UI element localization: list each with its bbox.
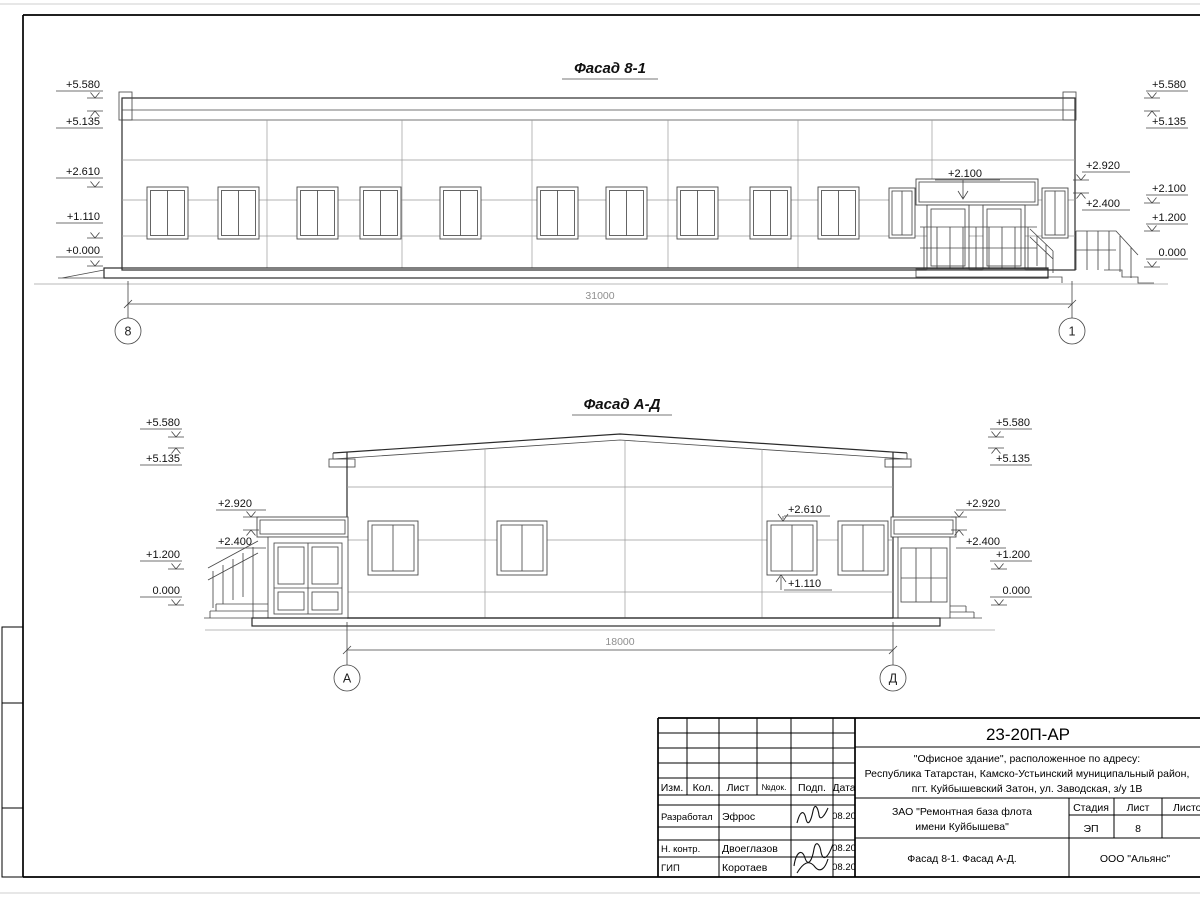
axis-bubble-label: А [343,672,352,686]
facade1-entrance [916,179,1062,283]
elevation-mark: +2.400 [1086,198,1120,210]
facade2-right-porch [891,517,982,618]
tb-stage-label: Стадия [1073,802,1109,814]
tb-name: Эфрос [722,811,755,823]
tb-doc-code: 23-20П-АР [986,725,1070,744]
elevation-mark: +1.200 [1152,212,1186,224]
elevation-mark: +5.580 [1152,79,1186,91]
axis-bubble-label: 1 [1069,325,1076,339]
tb-col-izm: Изм. [661,782,684,794]
tb-sheet-value: 8 [1135,823,1141,835]
elevation-mark: +2.920 [1086,160,1120,172]
elevation-mark: +5.135 [996,453,1030,465]
facade-a-d: Фасад А-Д [140,396,1032,691]
facade1-building [34,92,1168,284]
facade-8-1: Фасад 8-1 [34,60,1188,344]
drawing-sheet: Фасад 8-1 [0,0,1200,900]
facade2-dimension: 18000 А Д [334,622,906,691]
elevation-mark: +1.110 [67,211,100,223]
tb-stage-value: ЭП [1083,823,1098,835]
tb-role: Н. контр. [661,844,700,855]
elevation-mark: +5.135 [146,453,180,465]
facade2-marks-right-outer: +5.580 +5.135 +1.200 0.000 [988,417,1032,605]
facade1-right-stair [1076,231,1154,283]
tb-name: Двоеглазов [722,843,778,855]
tb-client-line2: имени Куйбышева" [915,821,1009,833]
elevation-mark: +2.920 [966,498,1000,510]
tb-date: 08.20 [832,811,856,822]
elevation-mark: +1.200 [996,549,1030,561]
tb-date: 08.20 [832,862,856,873]
tb-organization: ООО "Альянс" [1100,853,1170,865]
facade1-dimension: 31000 8 1 [115,281,1085,344]
elevation-mark: +2.400 [218,536,252,548]
tb-object-line3: пгт. Куйбышевский Затон, ул. Заводская, … [912,783,1143,795]
frame-side-boxes [2,627,23,877]
tb-sheet-label: Лист [1127,802,1150,814]
elevation-mark: +2.610 [66,166,100,178]
tb-object-line1: "Офисное здание", расположенное по адрес… [914,753,1140,765]
tb-name: Коротаев [722,862,768,874]
axis-bubble-label: 8 [125,325,132,339]
facade2-title: Фасад А-Д [584,396,661,413]
facade2-marks-left-outer: +5.580 +5.135 +1.200 0.000 [140,417,184,605]
tb-object-line2: Республика Татарстан, Камско-Устьинский … [865,768,1190,780]
tb-client-line1: ЗАО "Ремонтная база флота [892,806,1032,818]
facade2-building [204,434,995,630]
dimension-value: 31000 [585,290,614,302]
signature [797,806,828,823]
elevation-mark: 0.000 [1002,585,1030,597]
facade1-marks-right-inner: +2.920 +2.400 [1073,160,1130,210]
tb-role: ГИП [661,863,680,874]
tb-role: Разработал [661,812,713,823]
axis-bubble-label: Д [889,672,898,686]
elevation-mark: +1.110 [788,578,821,590]
drawing-canvas: Фасад 8-1 [0,0,1200,900]
elevation-mark: +5.580 [146,417,180,429]
facade1-marks-right-outer: +5.580 +5.135 +2.100 +1.200 0.000 [1144,79,1188,267]
elevation-mark: 0.000 [152,585,180,597]
elevation-mark: +5.580 [66,79,100,91]
elevation-mark: +5.580 [996,417,1030,429]
facade2-left-porch [204,517,348,618]
tb-col-ndok: №док. [762,782,787,792]
tb-col-kol: Кол. [693,782,714,794]
signature [794,844,833,873]
tb-col-data: Дата [832,782,855,794]
elevation-mark: +5.135 [1152,116,1186,128]
title-block: Изм. Кол. Лист №док. Подп. Дата Разработ… [658,718,1200,877]
tb-col-podp: Подп. [798,782,826,794]
elevation-mark: +2.920 [218,498,252,510]
elevation-mark: +0.000 [66,245,100,257]
dimension-value: 18000 [605,636,634,648]
facade1-title: Фасад 8-1 [574,60,646,77]
tb-col-list: Лист [727,782,750,794]
tb-date: 08.20 [832,843,856,854]
facade1-marks-left: +5.580 +5.135 +2.610 +1.110 +0.000 [56,79,103,266]
tb-sheet-title: Фасад 8-1. Фасад А-Д. [907,853,1016,865]
elevation-mark: +2.610 [788,504,822,516]
facade2-marks-right-inner: +2.920 +2.400 [951,498,1006,548]
elevation-mark: +2.100 [948,168,982,180]
tb-sheets-label: Листов [1173,802,1200,814]
elevation-mark: +1.200 [146,549,180,561]
elevation-mark: +2.100 [1152,183,1186,195]
elevation-mark: 0.000 [1158,247,1186,259]
elevation-mark: +2.400 [966,536,1000,548]
elevation-mark: +5.135 [66,116,100,128]
